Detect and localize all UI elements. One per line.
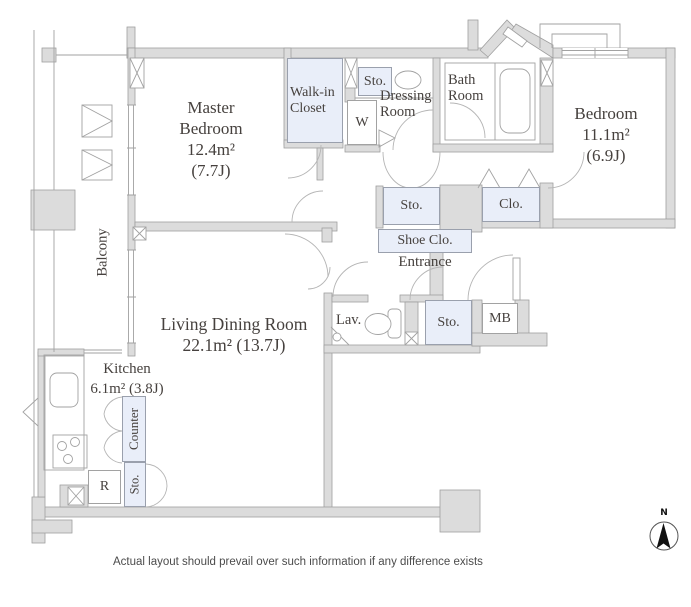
pillar-x-icon [541, 60, 553, 86]
storage-hall-label: Sto. [400, 198, 422, 214]
kitchen-label: Kitchen 6.1m² (3.8J) [90, 359, 163, 399]
dressing-room-label: Dressing Room [380, 88, 432, 120]
floor-plan: Walk-in Closet Sto. Sto. Clo. Shoe Clo. … [0, 0, 691, 607]
entrance-label: Entrance [398, 254, 451, 271]
closet-label: Clo. [499, 197, 523, 213]
meter-box: MB [482, 303, 518, 334]
pillar-x-icon [130, 58, 144, 88]
counter-label: Counter [126, 408, 142, 450]
walk-in-closet-area: Walk-in Closet [287, 58, 343, 143]
kitchen-counter-box: Counter [122, 396, 146, 462]
living-dining-label: Living Dining Room 22.1m² (13.7J) [161, 314, 308, 356]
front-door-leaf [513, 258, 520, 300]
folding-door-icon [379, 130, 540, 188]
shoe-closet-box: Shoe Clo. [378, 229, 472, 253]
refrigerator-label: R [100, 479, 109, 495]
refrigerator-box: R [88, 470, 121, 504]
ac-unit-icon [82, 105, 112, 180]
stove-icon [53, 435, 87, 468]
washer-label: W [355, 115, 368, 131]
washer-box: W [347, 100, 377, 145]
disclaimer-text: Actual layout should prevail over such i… [113, 556, 483, 568]
north-compass-icon [650, 522, 678, 550]
bath-room-label: Bath Room [448, 72, 483, 104]
balcony-label: Balcony [88, 217, 118, 287]
closet-box: Clo. [482, 187, 540, 222]
pillar-x-icon [68, 487, 84, 505]
service-door-icon [23, 398, 38, 426]
meter-box-label: MB [489, 311, 511, 327]
storage-entrance-label: Sto. [437, 315, 459, 331]
floor-plan-linework [0, 0, 691, 607]
walk-in-closet-label-line1: Walk-in [290, 85, 335, 101]
pillar-x-icon [133, 227, 146, 240]
kitchen-sink-icon [44, 355, 84, 470]
pillar-x-icon [405, 332, 418, 345]
shoe-closet-label: Shoe Clo. [397, 233, 452, 249]
north-label: N [660, 508, 668, 518]
storage-entrance-box: Sto. [425, 300, 472, 345]
corner-sink-icon [331, 327, 349, 345]
walk-in-closet-label-line2: Closet [290, 101, 335, 117]
master-bedroom-label: Master Bedroom 12.4m² (7.7J) [179, 97, 242, 181]
pillar-x-icon [345, 58, 357, 88]
toilet-icon [365, 309, 401, 338]
storage-kitchen-box: Sto. [124, 462, 146, 507]
lavatory-label: Lav. [336, 312, 361, 328]
storage-hall-box: Sto. [383, 187, 440, 225]
bedroom-label: Bedroom 11.1m² (6.9J) [574, 103, 637, 166]
storage-kitchen-label: Sto. [128, 475, 143, 495]
